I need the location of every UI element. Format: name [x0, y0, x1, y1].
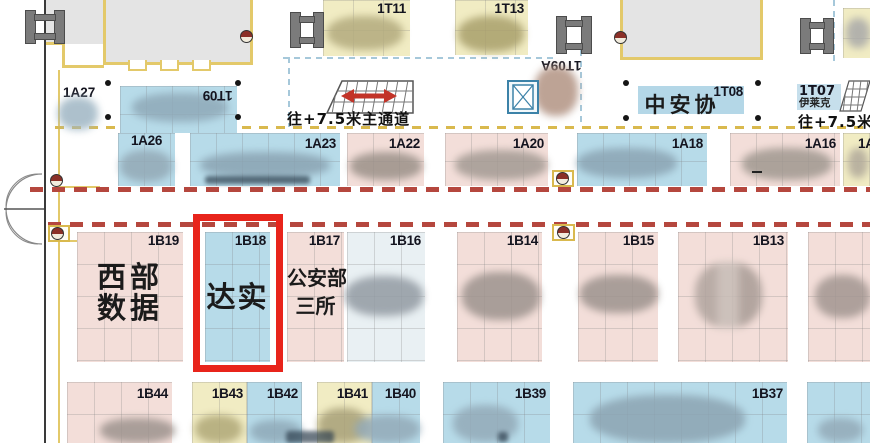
gate-icon — [25, 10, 65, 44]
booth-1B43: 1B43 — [192, 382, 247, 443]
column-dot — [755, 80, 761, 86]
annotation-arrow — [752, 171, 762, 173]
booth-number: 1A20 — [513, 136, 544, 151]
gate-icon — [800, 18, 834, 54]
booth-number: 1T11 — [377, 1, 406, 16]
booth-right-partial — [808, 232, 870, 362]
wall-stub — [192, 60, 211, 71]
booth-1A20: 1A20 — [445, 133, 548, 186]
lobby-wall — [62, 65, 104, 68]
booth-number: 1B19 — [148, 233, 179, 248]
booth-1B44: 1B44 — [67, 382, 172, 443]
booth-number: 1B37 — [752, 386, 783, 401]
booth-1B40: 1B40 — [372, 382, 420, 443]
hydrant-marker — [556, 172, 569, 185]
blurred-logo — [848, 148, 868, 178]
booth-1B16: 1B16 — [347, 232, 425, 362]
booth-1A23: 1A23 — [190, 133, 340, 186]
blurred-logo — [580, 275, 658, 313]
booth-number: 1B40 — [385, 386, 416, 401]
wall-stub — [128, 60, 147, 71]
blurred-logo — [195, 415, 242, 443]
hydrant-marker — [240, 30, 253, 43]
booth-number: 1T08 — [713, 84, 743, 99]
booth-1B17: 1B17 公安部 三所 — [287, 232, 344, 362]
gate-icon — [556, 16, 592, 54]
blurred-logo — [458, 16, 524, 52]
booth-number: 1B17 — [309, 233, 340, 248]
booth-number: 1A23 — [305, 136, 336, 151]
booth-1B14: 1B14 — [457, 232, 542, 362]
wall-stub — [160, 60, 179, 71]
booth-number: 1T09 — [203, 88, 233, 103]
booth-number: 1B41 — [337, 386, 368, 401]
blurred-logo — [462, 272, 540, 320]
column-dot — [235, 114, 241, 120]
booth-company-name: 西部 数据 — [77, 262, 183, 324]
booth-company-name: 公安部 三所 — [287, 264, 344, 320]
hydrant-marker — [557, 226, 570, 239]
column-dot — [105, 114, 111, 120]
booth-number: 1B39 — [515, 386, 546, 401]
booth-number: 1T13 — [494, 1, 524, 16]
booth-1T08: 中安协 1T08 — [638, 86, 744, 114]
booth-1B39: 1B39 — [443, 382, 550, 443]
booth-company-name: 伊莱克 — [799, 98, 839, 109]
booth-number: 1B44 — [137, 386, 168, 401]
booth-number: 1A26 — [131, 133, 162, 148]
booth-1T11: 1T11 — [323, 0, 410, 56]
hydrant-marker — [51, 227, 64, 240]
booth-1A22: 1A22 — [347, 133, 424, 186]
blurred-logo — [534, 66, 578, 116]
booth-number: 1A18 — [672, 136, 703, 151]
blurred-logo — [200, 152, 330, 178]
booth-corner — [843, 8, 870, 58]
booth-number: 1B42 — [267, 386, 298, 401]
booth-number: 1A22 — [389, 136, 420, 151]
blurred-text — [205, 176, 310, 184]
blurred-logo — [846, 18, 870, 48]
blurred-logo — [577, 148, 677, 178]
column-dot — [623, 115, 629, 121]
aisle-note-main: 往+7.5米主通道 — [287, 108, 410, 129]
blurred-logo — [355, 415, 420, 443]
booth-company-name: 中安协 — [644, 89, 720, 119]
blurred-logo — [350, 152, 422, 180]
highlight-box-1B18 — [193, 214, 283, 372]
red-dashed-line — [48, 222, 870, 227]
booth-number: 1B43 — [212, 386, 243, 401]
blurred-logo — [742, 148, 832, 180]
building-block-left — [103, 0, 253, 65]
hydrant-marker — [614, 31, 627, 44]
blurred-logo — [695, 262, 762, 328]
booth-1B13: 1B13 — [678, 232, 788, 362]
booth-1T07-label: 1T07 伊莱克 — [797, 84, 841, 110]
red-dashed-line — [30, 187, 870, 192]
stairs-icon — [839, 80, 870, 112]
booth-1A18: 1A18 — [577, 133, 707, 186]
booth-bottom-right-partial — [807, 382, 870, 443]
elevator-icon — [507, 80, 539, 114]
blurred-logo — [818, 418, 863, 442]
zone-dashed-line — [283, 57, 553, 59]
booth-1A14-partial: 1A1 — [843, 133, 870, 186]
blurred-logo — [327, 16, 403, 50]
blurred-logo — [345, 276, 423, 316]
booth-1T13: 1T13 — [455, 0, 528, 55]
hydrant-marker — [50, 174, 63, 187]
booth-number: 1B15 — [623, 233, 654, 248]
blurred-text — [286, 431, 334, 443]
blurred-logo — [455, 150, 547, 180]
booth-1B15: 1B15 — [578, 232, 658, 362]
blurred-logo — [100, 418, 175, 443]
blurred-logo — [120, 150, 172, 182]
booth-number: 1A16 — [805, 136, 836, 151]
blurred-logo — [815, 275, 870, 318]
column-dot — [623, 80, 629, 86]
booth-number: 1A1 — [858, 136, 870, 151]
booth-number: 1B16 — [390, 233, 421, 248]
column-dot — [755, 115, 761, 121]
floor-plan-canvas: 1T11 1T13 1T09 中安协 1T08 1A27 1T09A — [0, 0, 870, 443]
building-block-right — [620, 0, 763, 60]
booth-1A16: 1A16 — [730, 133, 840, 186]
column-dot — [235, 80, 241, 86]
booth-1B37: 1B37 — [573, 382, 787, 443]
gate-icon — [290, 12, 324, 48]
door-swing-icon — [2, 170, 48, 248]
booth-number: 1B13 — [753, 233, 784, 248]
blurred-logo — [590, 395, 745, 443]
blurred-logo — [453, 405, 518, 442]
blurred-logo — [58, 97, 98, 130]
booth-1T09: 1T09 — [120, 86, 237, 133]
column-dot — [105, 80, 111, 86]
booth-1B19: 1B19 西部 数据 — [77, 232, 183, 362]
blurred-text — [498, 432, 508, 442]
booth-number: 1B14 — [507, 233, 538, 248]
booth-1A26: 1A26 — [118, 133, 175, 186]
aisle-note-right: 往+7.5米 — [798, 111, 870, 132]
